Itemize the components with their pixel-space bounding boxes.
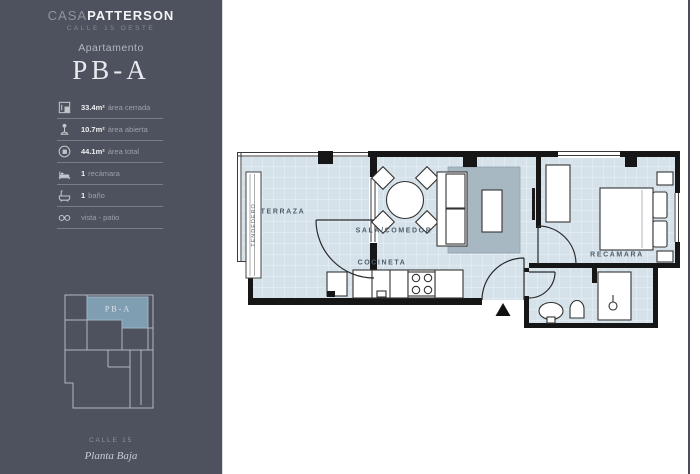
floorplan: TERRAZA SALA/COMEDOR COCINETA RECÁMARA T… xyxy=(223,0,689,474)
brand-name-light: CASA xyxy=(48,8,87,23)
floorplan-drawing xyxy=(230,145,690,340)
closet xyxy=(546,165,570,222)
room-label-recamara: RECÁMARA xyxy=(590,252,644,259)
spec-row-bathroom: 1baño xyxy=(57,185,163,207)
spec-text: 1recámara xyxy=(81,169,120,178)
brochure-page: CASAPATTERSON CALLE 15 OESTE Apartamento… xyxy=(0,0,700,474)
room-label-sala-comedor: SALA/COMEDOR xyxy=(356,228,433,235)
minimap-unit-label: PB-A xyxy=(105,305,131,314)
bed-icon xyxy=(57,166,72,181)
shower-head xyxy=(609,302,617,310)
kitchen-counter xyxy=(353,270,463,298)
spec-text: 44.1m²área total xyxy=(81,147,139,156)
spec-text: 33.4m²área cerrada xyxy=(81,103,150,112)
brand-name-bold: PATTERSON xyxy=(87,8,174,23)
room-label-tendedero: TENDEDERO xyxy=(251,203,257,247)
spec-text: vista - patio xyxy=(81,213,119,222)
total-area-icon xyxy=(57,144,72,159)
spec-row-total-area: 44.1m²área total xyxy=(57,141,163,163)
sofa xyxy=(437,172,467,246)
room-label-cocineta: COCINETA xyxy=(358,260,407,267)
spec-row-view: vista - patio xyxy=(57,207,163,229)
shower xyxy=(598,272,631,320)
entrance-arrow xyxy=(496,303,511,316)
utility-closet xyxy=(327,272,347,297)
toilet xyxy=(570,301,584,319)
apartment-label: Apartamento xyxy=(0,42,222,54)
bath-icon xyxy=(57,188,72,203)
spec-text: 1baño xyxy=(81,191,105,200)
spec-row-open-area: 10.7m²área abierta xyxy=(57,119,163,141)
street-label: CALLE 15 xyxy=(0,437,222,444)
view-icon xyxy=(57,210,72,225)
closed-area-icon xyxy=(57,100,72,115)
brand-subtitle: CALLE 15 OESTE xyxy=(0,25,222,32)
coffee-table xyxy=(482,190,502,232)
room-label-terraza: TERRAZA xyxy=(261,209,306,216)
spec-list: 33.4m²área cerrada 10.7m²área abierta 44… xyxy=(57,97,163,229)
tv xyxy=(532,188,535,220)
spec-text: 10.7m²área abierta xyxy=(81,125,148,134)
spec-row-closed-area: 33.4m²área cerrada xyxy=(57,97,163,119)
floor-name-label: Planta Baja xyxy=(0,450,222,462)
brand-name: CASAPATTERSON xyxy=(0,8,222,23)
sidebar: CASAPATTERSON CALLE 15 OESTE Apartamento… xyxy=(0,0,223,474)
spec-row-bedroom: 1recámara xyxy=(57,163,163,185)
page-edge-line xyxy=(688,0,690,474)
apartment-name: PB-A xyxy=(0,55,222,86)
open-area-icon xyxy=(57,122,72,137)
brand: CASAPATTERSON CALLE 15 OESTE xyxy=(0,8,222,32)
